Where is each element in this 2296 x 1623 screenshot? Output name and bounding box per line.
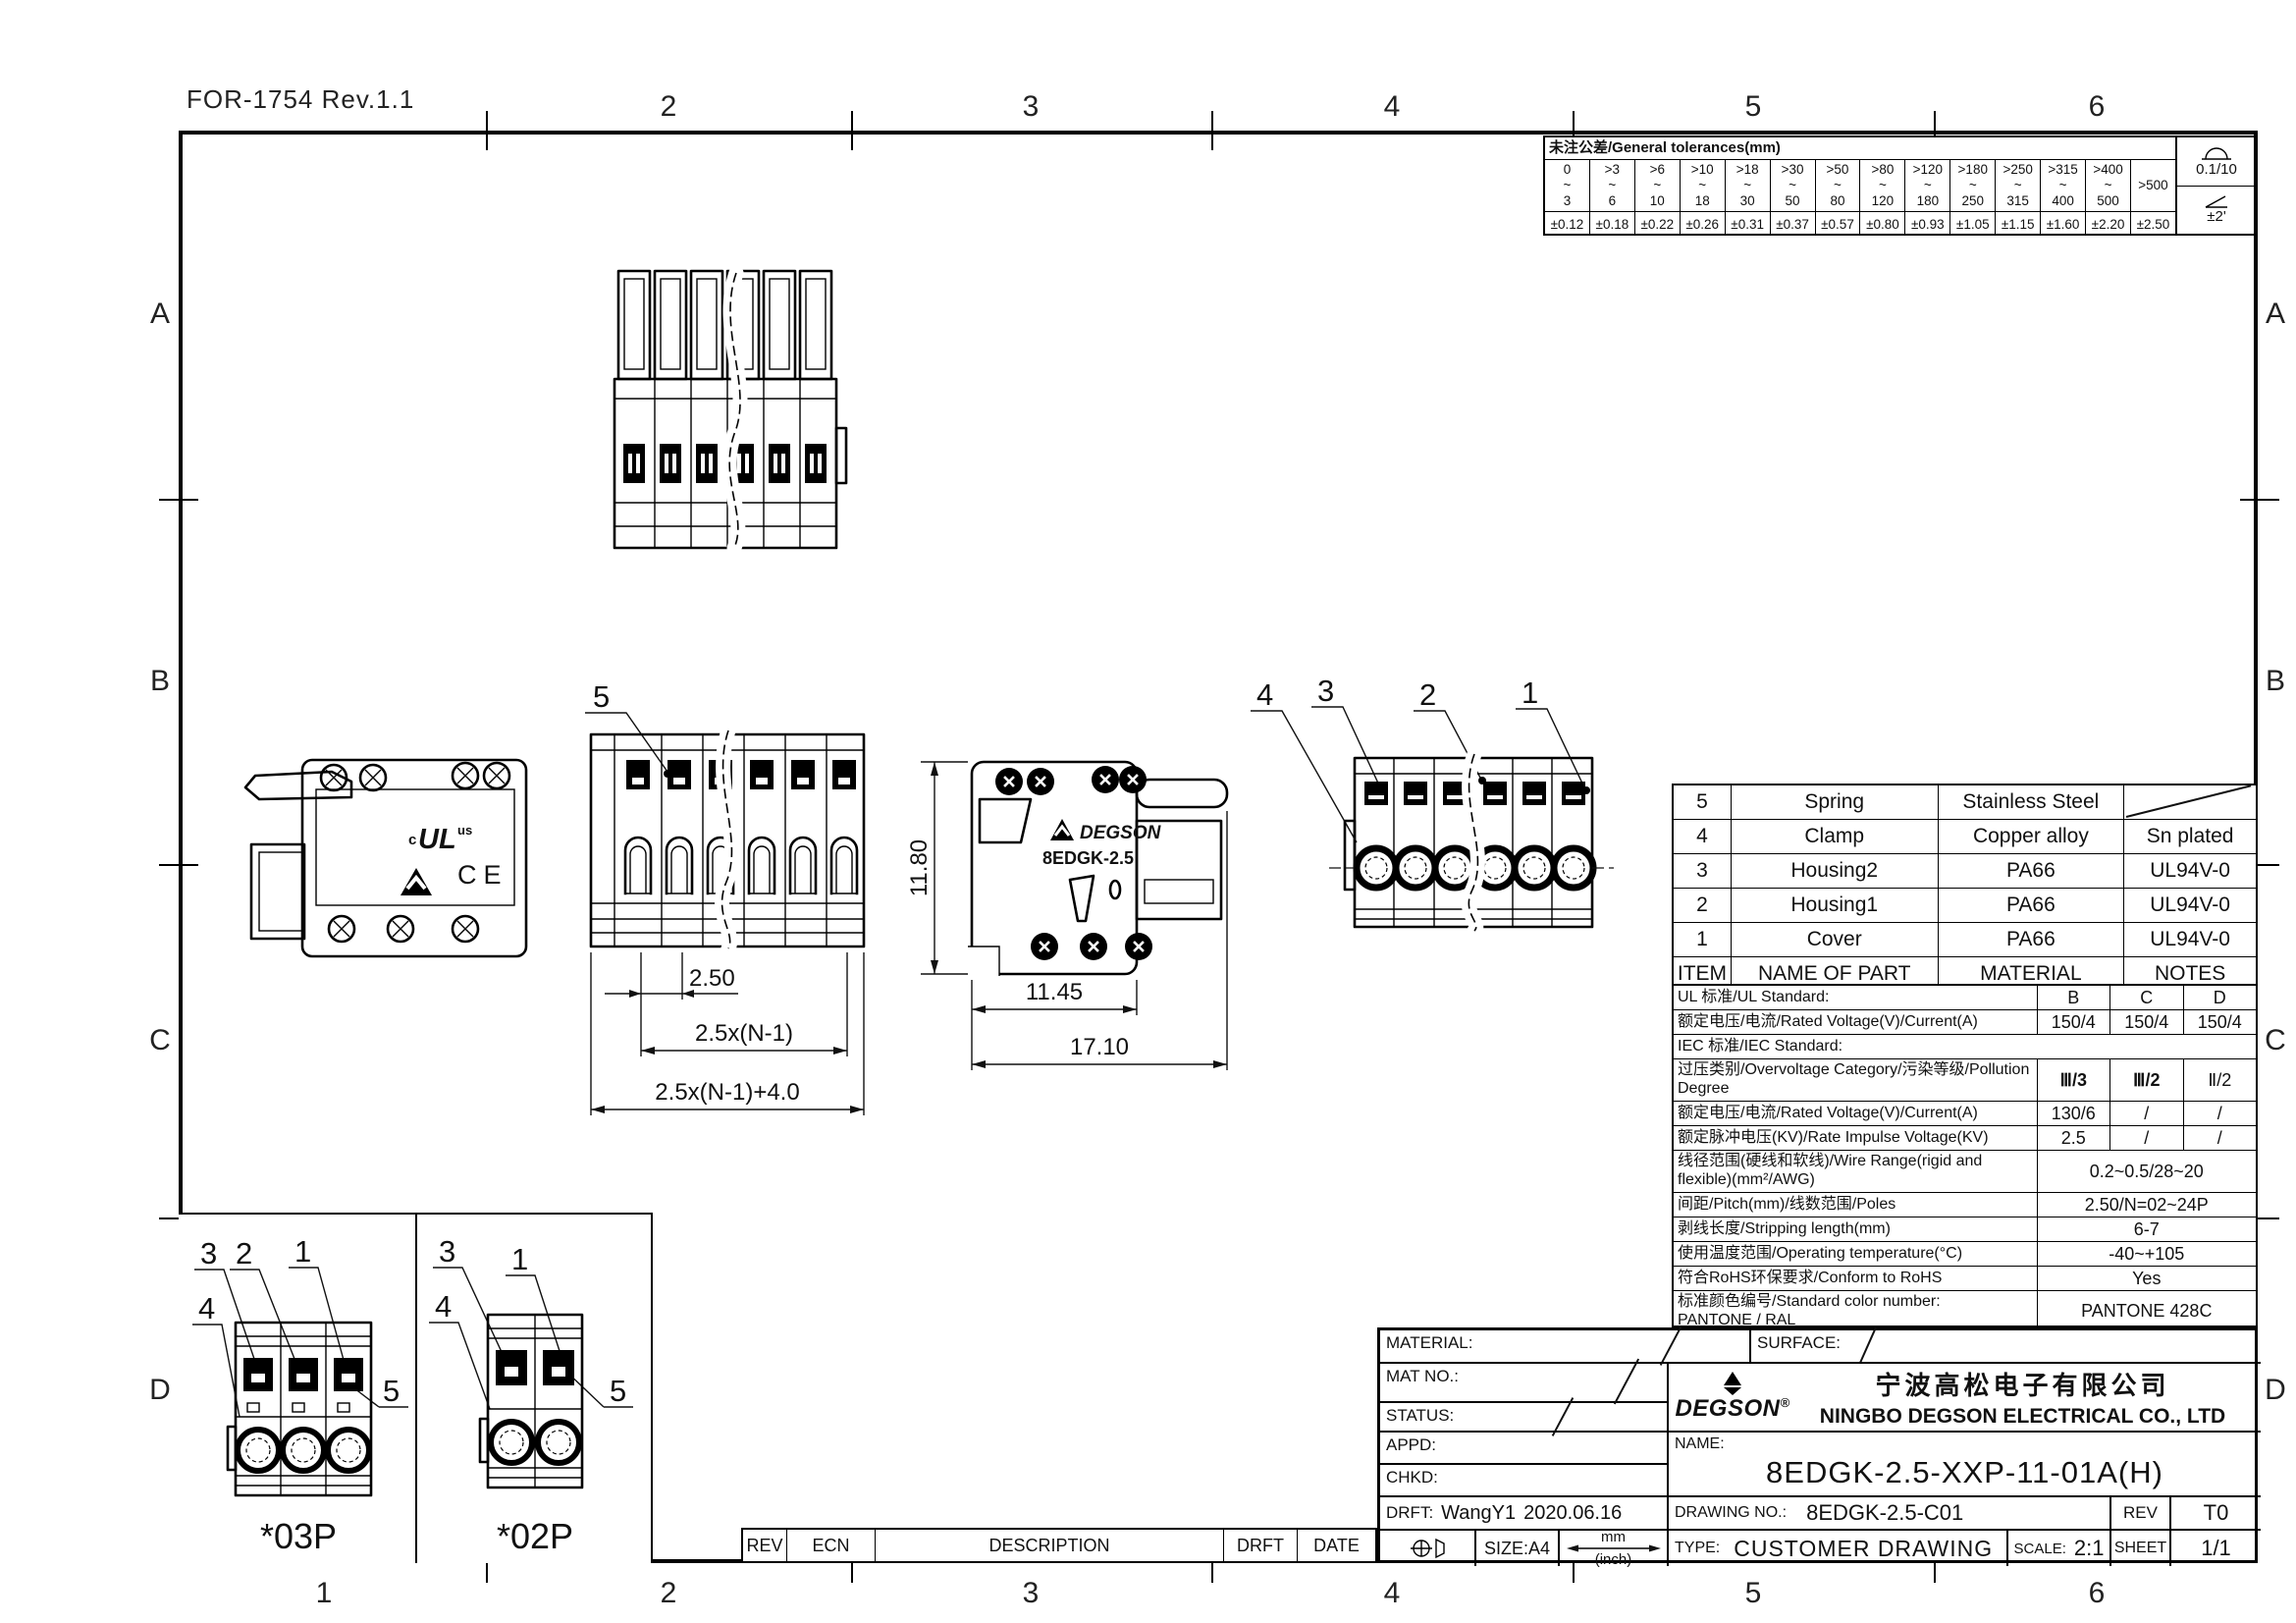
degson-logo-icon [1718, 1372, 1747, 1395]
grid-col-label: 5 [1724, 1577, 1783, 1610]
tol-value: ±0.57 [1816, 212, 1860, 236]
drft-header: DRFT [1224, 1530, 1298, 1561]
slash-mark [1552, 1397, 1574, 1436]
draft-date: 2020.06.16 [1523, 1502, 1622, 1525]
parts-row: 4 Clamp Copper alloy Sn plated [1674, 820, 2256, 854]
svg-text:us: us [457, 823, 472, 838]
spec-label: 符合RoHS环保要求/Conform to RoHS [1674, 1267, 2037, 1290]
grid-col-label: 6 [2067, 1577, 2126, 1610]
status-cell: STATUS: [1380, 1403, 1669, 1433]
projection-cell [1380, 1531, 1476, 1566]
angle-value: ±2' [2207, 208, 2225, 225]
callout-1: 1 [294, 1234, 311, 1269]
spec-row: 额定脉冲电压(KV)/Rate Impulse Voltage(KV) 2.5 … [1674, 1126, 2256, 1151]
tol-range: >18 ~ 30 [1726, 160, 1770, 212]
spec-col-b: 150/4 [2037, 1010, 2110, 1034]
parts-row: 5 Spring Stainless Steel [1674, 785, 2256, 820]
part-name: Housing2 [1732, 854, 1939, 888]
callout-5: 5 [610, 1374, 626, 1408]
company-name-en: NINGBO DEGSON ELECTRICAL CO., LTD [1820, 1405, 2225, 1429]
side-view-right: 11.80 DEGSON 8EDGK-2.5 11.45 17.10 [911, 715, 1256, 1080]
svg-text:17.10: 17.10 [1070, 1034, 1129, 1060]
border-tick [851, 111, 853, 150]
part-notes [2124, 785, 2256, 819]
material-cell: MATERIAL: [1380, 1330, 1751, 1364]
dimension-span: 2.5x(N-1) [641, 952, 847, 1056]
parts-row: 1 Cover PA66 UL94V-0 [1674, 923, 2256, 957]
surface-label: SURFACE: [1757, 1333, 1841, 1352]
tol-value: ±0.26 [1681, 212, 1725, 236]
brand-wordmark: DEGSON® [1675, 1395, 1789, 1423]
tol-value: ±0.80 [1860, 212, 1904, 236]
size-label: SIZE:A4 [1484, 1539, 1550, 1559]
front-view-center: 5 2.50 2.5x(N-1) 2.5x(N-1)+4.0 [577, 666, 876, 1129]
sheet-value: 1/1 [2201, 1536, 2231, 1561]
chkd-cell: CHKD: [1380, 1465, 1669, 1497]
tol-value: ±1.15 [1996, 212, 2040, 236]
callout-3: 3 [1317, 674, 1334, 708]
border-tick [1211, 111, 1213, 150]
part-material: Copper alloy [1939, 820, 2125, 853]
spec-value: Yes [2037, 1267, 2256, 1290]
spec-col-c: / [2109, 1126, 2183, 1150]
grid-row-label: A [131, 298, 189, 331]
spec-label: 过压类别/Overvoltage Category/污染等级/Pollution… [1674, 1059, 2037, 1101]
spec-col-d: Ⅱ/2 [2183, 1059, 2257, 1101]
part-material: PA66 [1939, 923, 2125, 956]
tol-range: >400 ~ 500 [2086, 160, 2130, 212]
tol-range: >315 ~ 400 [2041, 160, 2085, 212]
company-name-cn: 宁波高松电子有限公司 [1875, 1366, 2169, 1402]
revision-strip: REV ECN DESCRIPTION DRFT DATE [741, 1528, 1377, 1563]
spec-row: 间距/Pitch(mm)/线数范围/Poles 2.50/N=02~24P [1674, 1193, 2256, 1217]
part-material: Stainless Steel [1939, 785, 2125, 819]
tol-value: ±1.60 [2041, 212, 2085, 236]
tol-range: >10 ~ 18 [1681, 160, 1725, 212]
callout-3: 3 [439, 1234, 455, 1269]
company-cell: DEGSON® 宁波高松电子有限公司 NINGBO DEGSON ELECTRI… [1669, 1364, 2261, 1433]
slash-mark [2126, 784, 2251, 817]
rev-header: REV [743, 1530, 787, 1561]
tol-value: ±1.05 [1950, 212, 1995, 236]
svg-text:11.80: 11.80 [906, 839, 933, 896]
spec-col-c: Ⅲ/2 [2109, 1059, 2183, 1101]
brand-text: DEGSON [1080, 823, 1162, 843]
variant-label: *02P [497, 1516, 573, 1556]
title-block: MATERIAL: SURFACE: MAT NO.: STATUS: DEGS… [1377, 1327, 2258, 1563]
spec-label: 标准颜色编号/Standard color number: PANTONE / … [1674, 1291, 2037, 1331]
drft-label: DRFT: [1386, 1503, 1433, 1523]
variant-02p-view: 3 1 4 5 *02P [417, 1215, 653, 1565]
status-label: STATUS: [1386, 1406, 1454, 1425]
flatness-value: 0.1/10 [2196, 161, 2237, 178]
spec-col-c: 150/4 [2109, 1010, 2183, 1034]
callout-1: 1 [1522, 676, 1538, 710]
spec-row: 标准颜色编号/Standard color number: PANTONE / … [1674, 1291, 2256, 1331]
tol-value: ±0.12 [1545, 212, 1589, 236]
part-name: Spring [1732, 785, 1939, 819]
ecn-header: ECN [787, 1530, 876, 1561]
lever-window [980, 799, 1031, 842]
angle-tolerance: ±2' [2177, 186, 2256, 235]
registered-mark: ® [1780, 1395, 1789, 1410]
spec-label: 使用温度范围/Operating temperature(°C) [1674, 1242, 2037, 1266]
grid-col-label: 3 [1001, 1577, 1060, 1610]
drawing-no-value: 8EDGK-2.5-C01 [1806, 1500, 1963, 1526]
funnel-opening [1070, 876, 1094, 921]
grid-col-label: 3 [1001, 90, 1060, 124]
parts-table: 5 Spring Stainless Steel 4 Clamp Copper … [1672, 784, 2258, 986]
tol-range: >180 ~ 250 [1950, 160, 1995, 212]
callout-4: 4 [198, 1291, 215, 1325]
tolerance-grid: 0 ~ 3±0.12 >3 ~ 6±0.18 >6 ~ 10±0.22 >10 … [1545, 160, 2175, 236]
spec-col-b: 2.5 [2037, 1126, 2110, 1150]
drawing-no-cell: DRAWING NO.: 8EDGK-2.5-C01 [1669, 1497, 2111, 1531]
material-label: MATERIAL: [1386, 1333, 1472, 1352]
parts-row: 3 Housing2 PA66 UL94V-0 [1674, 854, 2256, 889]
name-label: NAME: [1675, 1435, 2255, 1453]
spec-table: UL 标准/UL Standard: B C D 额定电压/电流/Rated V… [1672, 984, 2258, 1327]
unit-inch: (inch) [1595, 1552, 1632, 1567]
spec-col-c: C [2109, 986, 2183, 1009]
side-view-left: c UL us CE [243, 746, 530, 962]
svg-text:2.5x(N-1)+4.0: 2.5x(N-1)+4.0 [655, 1079, 799, 1106]
border-tick [159, 499, 198, 501]
spec-row: 额定电压/电流/Rated Voltage(V)/Current(A) 150/… [1674, 1010, 2256, 1035]
drafter-name: WangY1 [1441, 1502, 1516, 1525]
parts-row: 2 Housing1 PA66 UL94V-0 [1674, 889, 2256, 923]
part-name: Clamp [1732, 820, 1939, 853]
type-value: CUSTOMER DRAWING [1734, 1536, 1993, 1562]
surface-cell: SURFACE: [1751, 1330, 2261, 1364]
date-header: DATE [1298, 1530, 1375, 1561]
spec-row: 额定电压/电流/Rated Voltage(V)/Current(A) 130/… [1674, 1102, 2256, 1126]
part-notes: UL94V-0 [2124, 923, 2256, 956]
border-tick [486, 111, 488, 150]
tol-value: ±2.50 [2131, 212, 2175, 236]
dimension-height: 11.80 [906, 762, 968, 974]
spec-col-d: / [2183, 1102, 2257, 1125]
grid-col-label: 4 [1362, 90, 1421, 124]
rev-label-cell: REV [2111, 1497, 2171, 1531]
spec-row: 符合RoHS环保要求/Conform to RoHS Yes [1674, 1267, 2256, 1291]
scale-value: 2:1 [2074, 1536, 2105, 1561]
spec-row: 剥线长度/Stripping length(mm) 6-7 [1674, 1217, 2256, 1242]
grid-row-label: B [131, 665, 189, 698]
spec-row: 使用温度范围/Operating temperature(°C) -40~+10… [1674, 1242, 2256, 1267]
variant-03p-view: 3 2 1 4 5 *03P [179, 1215, 417, 1565]
svg-text:UL: UL [418, 824, 456, 855]
variant-box-02p: 3 1 4 5 *02P [417, 1213, 653, 1563]
part-item: 3 [1674, 854, 1732, 888]
tol-value: ±0.37 [1771, 212, 1815, 236]
model-text: 8EDGK-2.5 [1042, 848, 1134, 868]
rev-value-cell: T0 [2171, 1497, 2261, 1531]
size-cell: SIZE:A4 [1476, 1531, 1560, 1566]
spec-value: PANTONE 428C [2037, 1291, 2256, 1331]
grid-col-label: 2 [639, 1577, 698, 1610]
part-item: 5 [1674, 785, 1732, 819]
angle-icon [2204, 194, 2229, 208]
callout-5: 5 [383, 1374, 400, 1408]
drawing-no-label: DRAWING NO.: [1675, 1504, 1787, 1522]
spec-row: 过压类别/Overvoltage Category/污染等级/Pollution… [1674, 1059, 2256, 1102]
tolerance-title: 未注公差/General tolerances(mm) [1545, 137, 2175, 160]
part-number: 8EDGK-2.5-XXP-11-01A(H) [1675, 1455, 2255, 1490]
spec-label: 额定电压/电流/Rated Voltage(V)/Current(A) [1674, 1010, 2037, 1034]
sheet-label-cell: SHEET [2111, 1531, 2171, 1566]
callout-1: 1 [511, 1242, 528, 1276]
spec-row: 线径范围(硬线和软线)/Wire Range(rigid and flexibl… [1674, 1151, 2256, 1193]
tol-range: >3 ~ 6 [1590, 160, 1634, 212]
spec-label: UL 标准/UL Standard: [1674, 986, 2037, 1009]
part-name: Cover [1732, 923, 1939, 956]
spec-col-d: D [2183, 986, 2257, 1009]
tol-range: >80 ~ 120 [1860, 160, 1904, 212]
flatness-icon [2202, 145, 2231, 161]
spec-label: 间距/Pitch(mm)/线数范围/Poles [1674, 1193, 2037, 1217]
type-cell: TYPE: CUSTOMER DRAWING [1669, 1531, 2008, 1566]
callout-4: 4 [1256, 677, 1273, 712]
variant-label: *03P [260, 1516, 337, 1556]
unit-mm: mm [1601, 1530, 1626, 1544]
spec-col-d: 150/4 [2183, 1010, 2257, 1034]
tol-value: ±0.93 [1905, 212, 1949, 236]
callout-3: 3 [200, 1236, 217, 1271]
tol-value: ±0.31 [1726, 212, 1770, 236]
part-notes: UL94V-0 [2124, 854, 2256, 888]
slash-mark [1859, 1327, 1876, 1363]
projection-symbol-icon [1411, 1538, 1444, 1559]
scale-cell: SCALE: 2:1 [2008, 1531, 2111, 1566]
tol-value: ±0.18 [1590, 212, 1634, 236]
spec-row: UL 标准/UL Standard: B C D [1674, 986, 2256, 1010]
grid-row-label: B [2246, 665, 2296, 698]
spec-value: 2.50/N=02~24P [2037, 1193, 2256, 1217]
front-view-top [613, 269, 848, 552]
chkd-label: CHKD: [1386, 1468, 1438, 1487]
svg-text:2.5x(N-1): 2.5x(N-1) [695, 1020, 793, 1047]
drft-cell: DRFT: WangY1 2020.06.16 [1380, 1497, 1669, 1531]
tol-range: >500 [2131, 160, 2175, 212]
slash-mark [1660, 1326, 1682, 1366]
variant-box-03p: 3 2 1 4 5 *03P [179, 1213, 417, 1563]
flatness-tolerance: 0.1/10 [2177, 137, 2256, 186]
svg-text:2.50: 2.50 [689, 965, 735, 992]
grid-col-label: 5 [1724, 90, 1783, 124]
slash-mark [1614, 1359, 1639, 1405]
mat-no-cell: MAT NO.: [1380, 1364, 1669, 1403]
degson-logo: DEGSON® [1675, 1372, 1790, 1423]
pin-arm [1137, 780, 1227, 807]
part-item: 4 [1674, 820, 1732, 853]
svg-text:11.45: 11.45 [1026, 979, 1083, 1005]
grid-col-label: 2 [639, 90, 698, 124]
appd-cell: APPD: [1380, 1433, 1669, 1465]
rev-value: T0 [2204, 1500, 2229, 1526]
part-name: Housing1 [1732, 889, 1939, 922]
callout-2: 2 [1419, 677, 1436, 712]
callout-4: 4 [435, 1289, 452, 1324]
form-reference: FOR-1754 Rev.1.1 [187, 84, 414, 115]
tolerance-table: 未注公差/General tolerances(mm) 0 ~ 3±0.12 >… [1543, 135, 2258, 236]
description-header: DESCRIPTION [876, 1530, 1224, 1561]
part-notes: UL94V-0 [2124, 889, 2256, 922]
rev-label: REV [2123, 1503, 2158, 1523]
tol-range: >250 ~ 315 [1996, 160, 2040, 212]
appd-label: APPD: [1386, 1435, 1436, 1454]
ce-mark: CE [457, 860, 508, 890]
cad-drawing-sheet: FOR-1754 Rev.1.1 2 3 4 5 6 1 2 3 4 5 6 A… [0, 0, 2296, 1623]
tol-range: >120 ~ 180 [1905, 160, 1949, 212]
callout-2: 2 [236, 1236, 252, 1271]
callout-5: 5 [593, 679, 610, 714]
grid-col-label: 4 [1362, 1577, 1421, 1610]
spec-value: -40~+105 [2037, 1242, 2256, 1266]
tol-range: >6 ~ 10 [1635, 160, 1680, 212]
ul-mark: c UL us [408, 823, 472, 855]
grid-row-label: C [131, 1024, 189, 1057]
spec-col-b: 130/6 [2037, 1102, 2110, 1125]
part-material: PA66 [1939, 889, 2125, 922]
brand-text: DEGSON [1675, 1395, 1780, 1422]
part-item: 2 [1674, 889, 1732, 922]
border-tick [159, 864, 198, 866]
scale-label: SCALE: [2014, 1541, 2066, 1557]
mat-no-label: MAT NO.: [1386, 1367, 1459, 1385]
spec-value: 6-7 [2037, 1217, 2256, 1241]
part-item: 1 [1674, 923, 1732, 956]
name-cell: NAME: 8EDGK-2.5-XXP-11-01A(H) [1669, 1433, 2261, 1497]
tol-range: >30 ~ 50 [1771, 160, 1815, 212]
spec-label: 额定电压/电流/Rated Voltage(V)/Current(A) [1674, 1102, 2037, 1125]
tol-range: >50 ~ 80 [1816, 160, 1860, 212]
spec-label: IEC 标准/IEC Standard: [1674, 1035, 2256, 1058]
back-view: 4 3 2 1 [1247, 674, 1620, 941]
part-material: PA66 [1939, 854, 2125, 888]
svg-text:c: c [408, 832, 416, 848]
tol-value: ±0.22 [1635, 212, 1680, 236]
unit-cell: mm (inch) [1560, 1531, 1669, 1566]
sheet-label: SHEET [2114, 1540, 2166, 1557]
border-tick [2240, 499, 2279, 501]
degson-triangle-icon [400, 868, 432, 895]
spec-row: IEC 标准/IEC Standard: [1674, 1035, 2256, 1059]
spec-value: 0.2~0.5/28~20 [2037, 1151, 2256, 1192]
spec-col-b: Ⅲ/3 [2037, 1059, 2110, 1101]
spec-col-b: B [2037, 986, 2110, 1009]
tol-value: ±2.20 [2086, 212, 2130, 236]
part-notes: Sn plated [2124, 820, 2256, 853]
spec-label: 线径范围(硬线和软线)/Wire Range(rigid and flexibl… [1674, 1151, 2037, 1192]
type-label: TYPE: [1675, 1540, 1720, 1557]
spec-col-d: / [2183, 1126, 2257, 1150]
tol-range: 0 ~ 3 [1545, 160, 1589, 212]
grid-col-label: 6 [2067, 90, 2126, 124]
spec-label: 剥线长度/Stripping length(mm) [1674, 1217, 2037, 1241]
spec-col-c: / [2109, 1102, 2183, 1125]
sheet-value-cell: 1/1 [2171, 1531, 2261, 1566]
grid-col-label: 1 [294, 1577, 353, 1610]
spec-label: 额定脉冲电压(KV)/Rate Impulse Voltage(KV) [1674, 1126, 2037, 1150]
grid-row-label: A [2246, 298, 2296, 331]
degson-triangle-icon [1050, 819, 1074, 840]
